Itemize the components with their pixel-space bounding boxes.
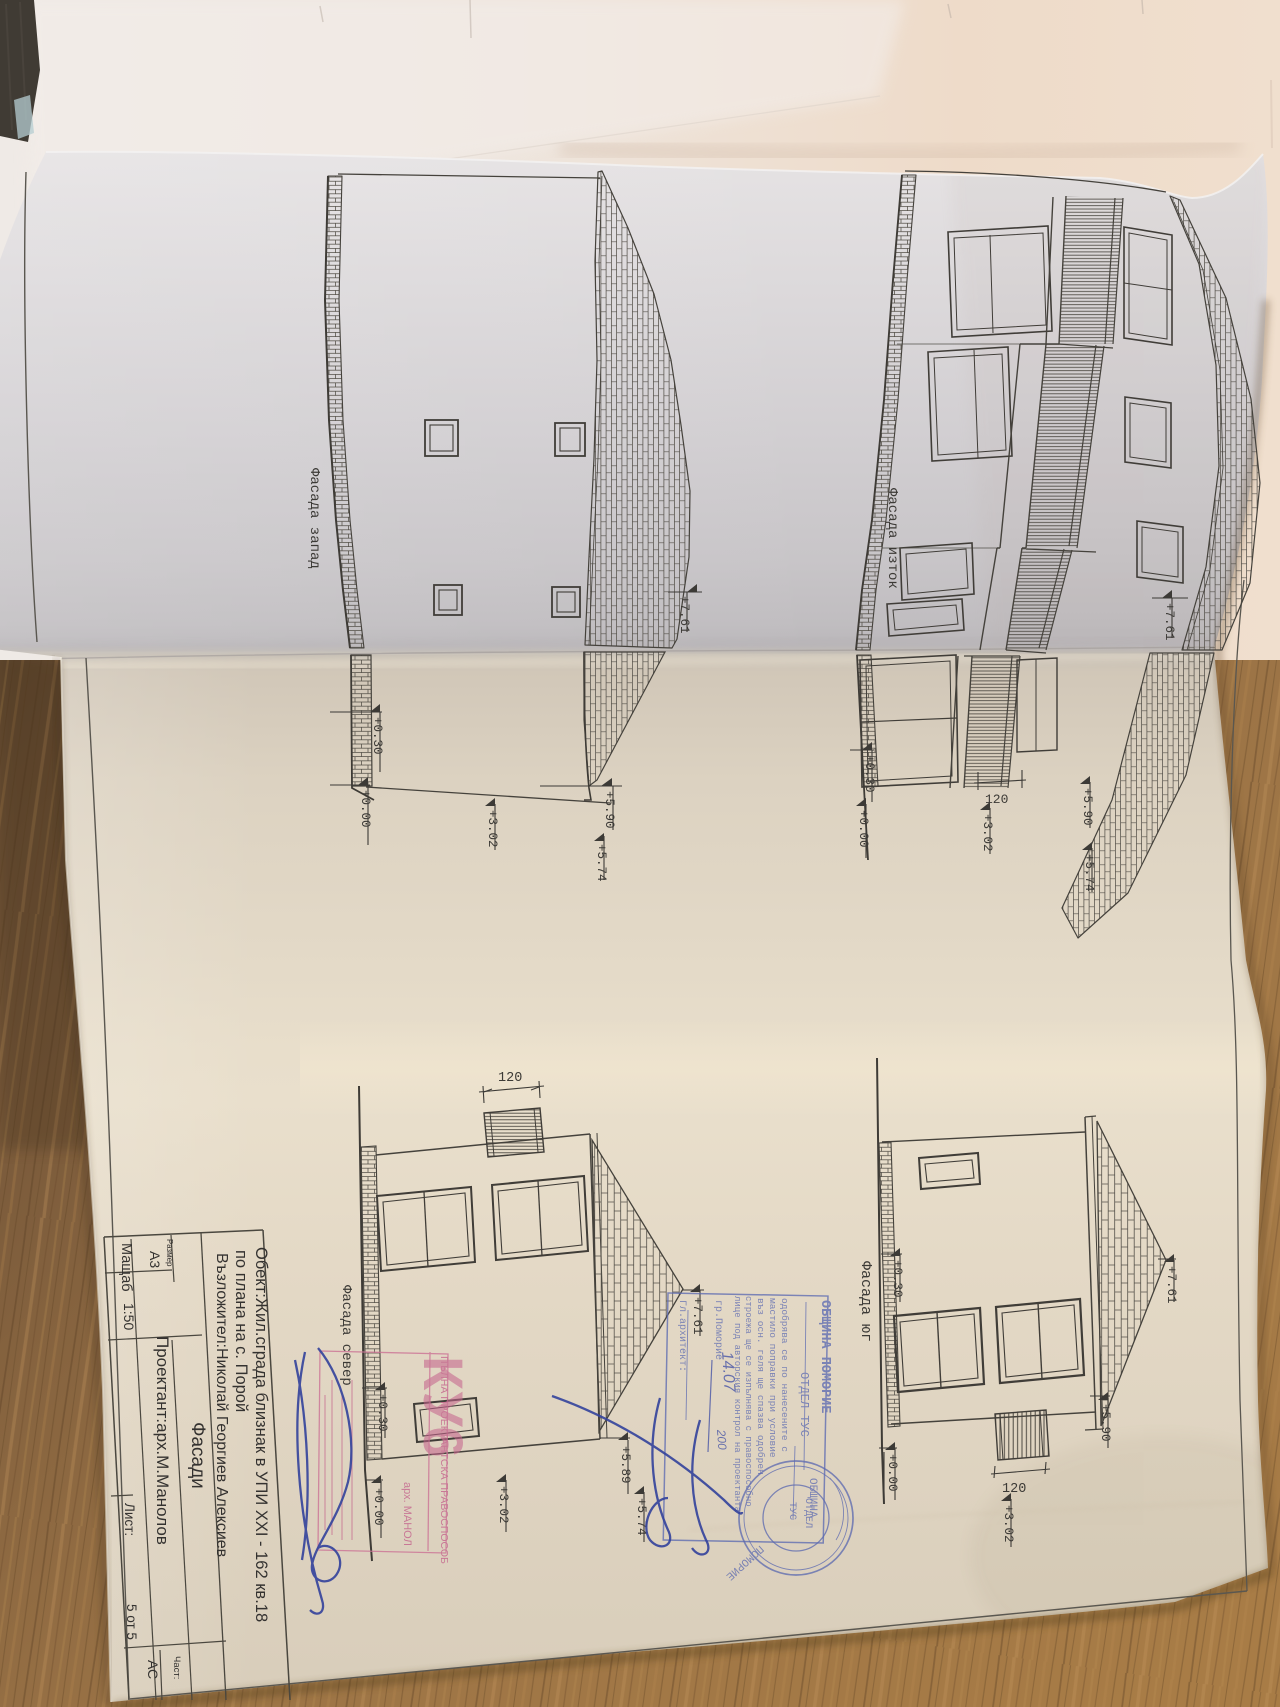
svg-text:Фасада юг: Фасада юг xyxy=(857,1261,874,1342)
svg-text:+0.30: +0.30 xyxy=(890,1260,904,1298)
svg-text:+3.02: +3.02 xyxy=(496,1486,510,1524)
svg-text:+0.30: +0.30 xyxy=(375,1394,389,1432)
svg-text:+0.30: +0.30 xyxy=(370,717,384,755)
svg-text:гр.Поморие: гр.Поморие xyxy=(712,1300,723,1360)
svg-text:Лист:: Лист: xyxy=(122,1503,137,1536)
svg-text:1:50: 1:50 xyxy=(121,1303,137,1330)
svg-text:Проектант:арх.М.Манолов: Проектант:арх.М.Манолов xyxy=(153,1336,172,1545)
svg-text:+7.61: +7.61 xyxy=(1164,1266,1178,1304)
svg-text:Възложител:Николай Георгиев Ал: Възложител:Николай Георгиев Алексиев xyxy=(213,1253,230,1557)
svg-text:+0.00: +0.00 xyxy=(885,1454,899,1492)
svg-text:+7.61: +7.61 xyxy=(677,596,691,634)
svg-text:строежа ще се изпълнява с прав: строежа ще се изпълнява с правоспособно xyxy=(743,1296,753,1507)
svg-text:ТУС: ТУС xyxy=(786,1502,797,1520)
svg-text:Гл.архитект:: Гл.архитект: xyxy=(676,1300,687,1372)
svg-text:+5.89: +5.89 xyxy=(618,1446,632,1484)
svg-text:200: 200 xyxy=(714,1428,729,1450)
svg-text:въз осн. геля ще спазва одобре: въз осн. геля ще спазва одобрен xyxy=(755,1298,766,1475)
svg-text:Обект:Жил.сграда близнак в УПИ: Обект:Жил.сграда близнак в УПИ XXI - 162… xyxy=(252,1247,270,1622)
svg-text:КУ6: КУ6 xyxy=(412,1356,475,1458)
svg-text:ОБЩИНА ПОМОРИЕ: ОБЩИНА ПОМОРИЕ xyxy=(817,1300,832,1413)
svg-text:+0.00: +0.00 xyxy=(358,790,372,828)
svg-text:Фасади: Фасади xyxy=(187,1422,208,1489)
svg-text:Фасада изток: Фасада изток xyxy=(884,488,900,589)
svg-text:ОТДЕЛ ТУС: ОТДЕЛ ТУС xyxy=(797,1372,811,1437)
svg-text:одобрява се по нанесените с: одобрява се по нанесените с xyxy=(779,1298,790,1452)
svg-text:Фасада запад: Фасада запад xyxy=(306,468,322,569)
svg-text:+5.90: +5.90 xyxy=(602,791,616,829)
svg-text:120: 120 xyxy=(1002,1482,1026,1497)
svg-text:5 от 5: 5 от 5 xyxy=(124,1604,139,1640)
svg-text:Мащаб: Мащаб xyxy=(118,1243,134,1292)
svg-text:+0.30: +0.30 xyxy=(862,755,876,793)
svg-text:+0.00: +0.00 xyxy=(371,1488,385,1526)
svg-text:120: 120 xyxy=(498,1071,522,1086)
svg-text:+7.61: +7.61 xyxy=(690,1297,704,1335)
svg-text:+3.02: +3.02 xyxy=(980,814,994,852)
svg-text:мастило поправки при услови: мастило поправки при условие xyxy=(767,1298,778,1458)
svg-text:+0.00: +0.00 xyxy=(856,810,870,848)
svg-text:+5.90: +5.90 xyxy=(1080,788,1094,826)
svg-text:+3.02: +3.02 xyxy=(1001,1505,1015,1543)
svg-text:+7.61: +7.61 xyxy=(1162,603,1176,641)
svg-text:+3.02: +3.02 xyxy=(485,810,499,848)
svg-text:А3: А3 xyxy=(147,1251,163,1268)
svg-text:+5.74: +5.74 xyxy=(1082,854,1096,892)
svg-text:Част:: Част: xyxy=(171,1656,182,1679)
svg-text:лице под авторския контрол на: лице под авторския контрол на проектанта xyxy=(732,1296,742,1513)
svg-text:арх. МАНОЛ: арх. МАНОЛ xyxy=(401,1482,413,1546)
svg-text:ОТДЕЛ: ОТДЕЛ xyxy=(802,1498,813,1528)
svg-text:Фасада север: Фасада север xyxy=(338,1285,354,1386)
svg-text:+5.74: +5.74 xyxy=(594,844,608,882)
svg-text:Размер: Размер xyxy=(165,1239,174,1267)
svg-text:по плана на с. Порой: по плана на с. Порой xyxy=(232,1250,250,1412)
svg-text:АС: АС xyxy=(145,1660,161,1679)
svg-text:+5.90: +5.90 xyxy=(1098,1404,1112,1442)
svg-text:14.07: 14.07 xyxy=(718,1351,738,1393)
